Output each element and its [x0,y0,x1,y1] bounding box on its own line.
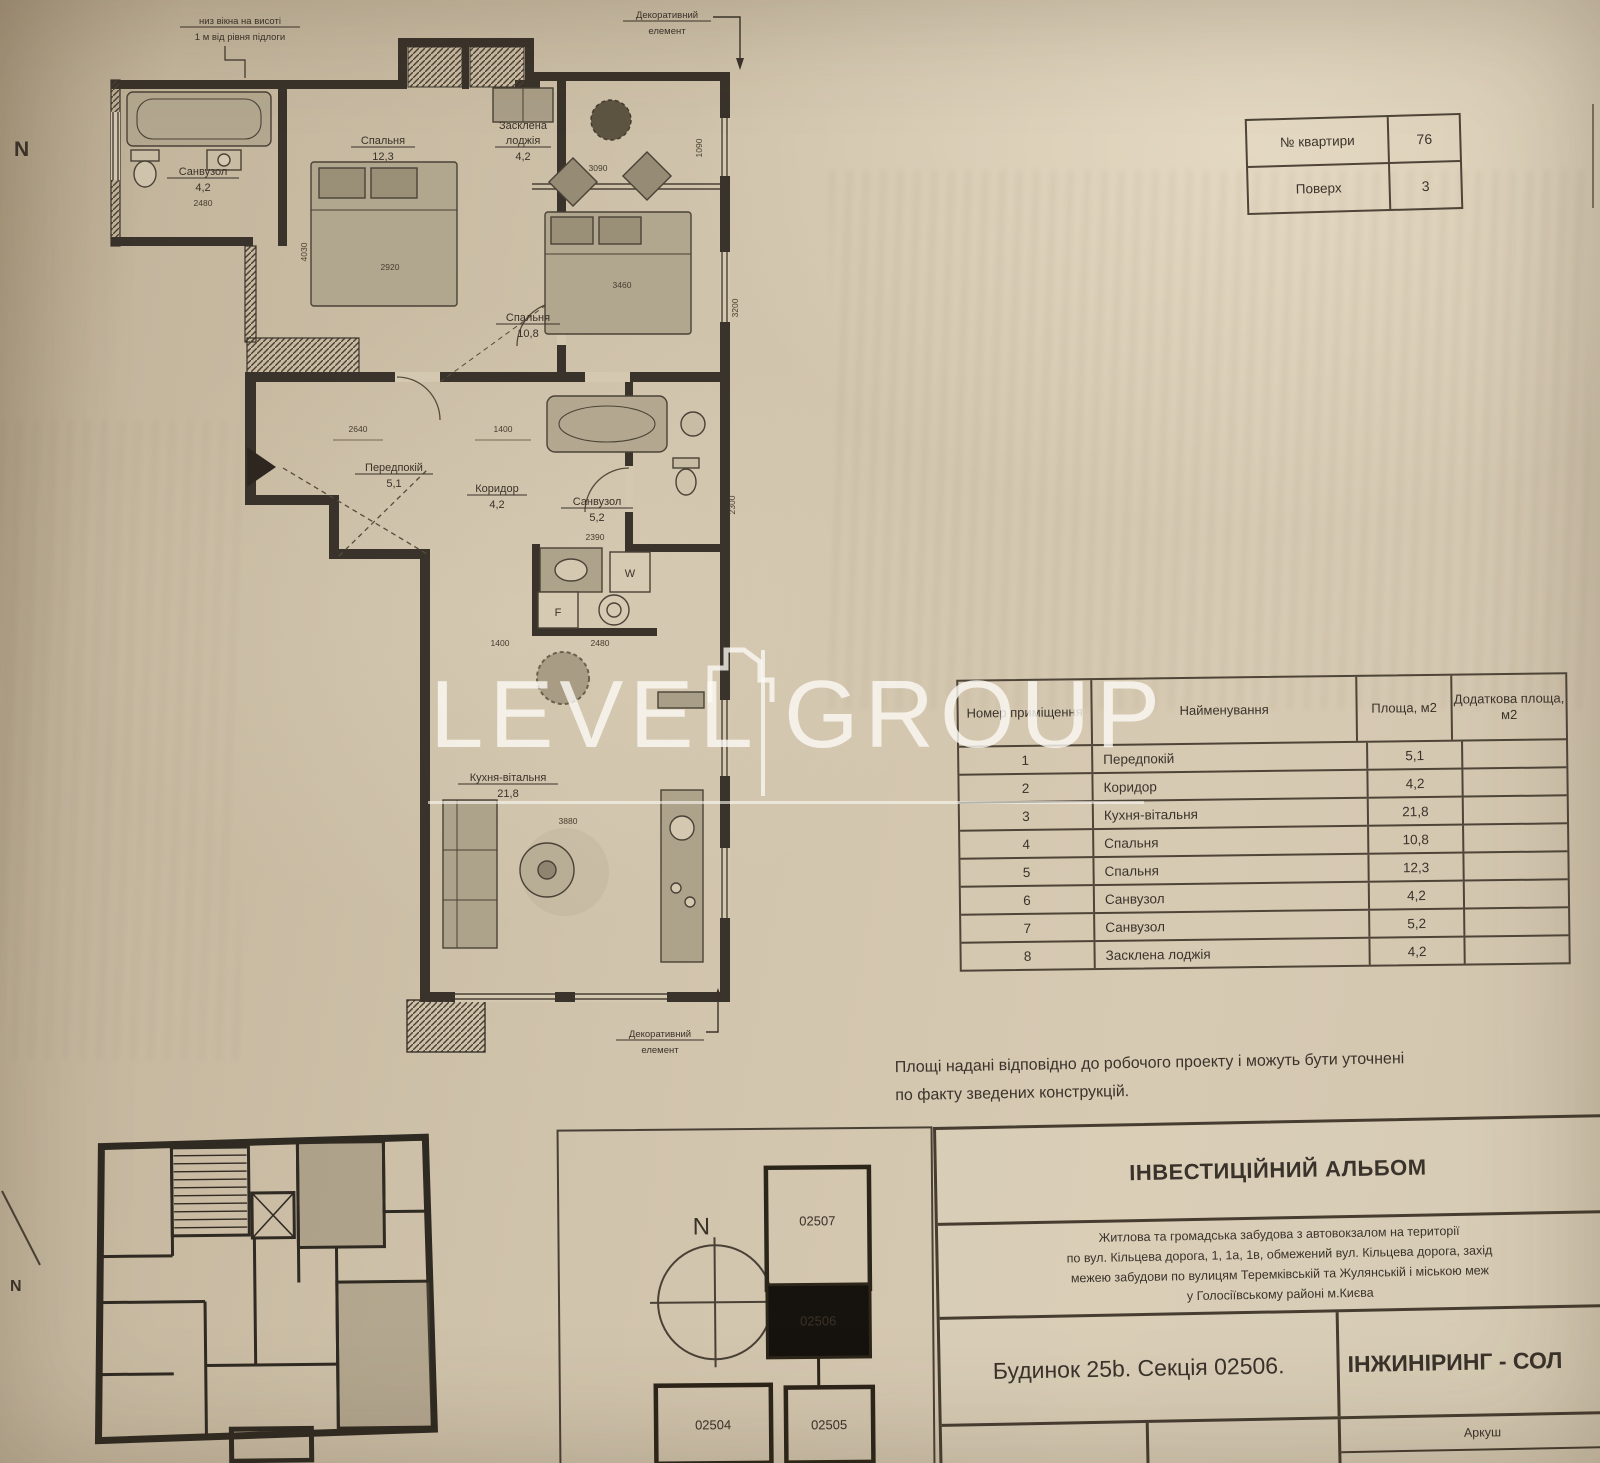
svg-text:елемент: елемент [641,1045,679,1056]
svg-text:3460: 3460 [613,280,632,290]
cell-extra [1463,768,1566,795]
section-02507-label: 02507 [799,1213,835,1228]
svg-text:5,1: 5,1 [386,478,401,490]
apartment-number-value: 76 [1389,115,1460,162]
svg-text:3200: 3200 [730,298,740,317]
svg-text:2390: 2390 [586,532,605,542]
svg-text:елемент: елемент [648,26,686,37]
sheet-label-column: Аркуш [1341,1414,1600,1463]
svg-text:21,8: 21,8 [497,788,518,800]
room-label-bedroom1: Спальня [361,135,405,147]
room-label-loggia: Засклена [499,120,548,132]
svg-text:2640: 2640 [349,424,368,434]
cell-extra [1465,880,1568,907]
areas-disclaimer-note: Площі надані відповідно до робочого прое… [895,1042,1596,1110]
title-block: ІНВЕСТИЦІЙНИЙ АЛЬБОМ Житлова та громадсь… [933,1114,1600,1463]
cell-num: 8 [961,942,1095,970]
section-key-diagram: N 02507 02506 02504 02505 [557,1126,936,1463]
chair-icon [623,152,671,200]
svg-text:2480: 2480 [194,198,213,208]
boiler-icon [681,412,705,436]
project-description: Житлова та громадська забудова з автовок… [938,1213,1600,1320]
floor-value: 3 [1390,162,1461,209]
svg-text:4,2: 4,2 [489,499,504,511]
section-02504-label: 02504 [695,1417,731,1432]
cell-extra [1465,936,1568,963]
cell-num: 6 [961,886,1095,914]
apartment-number-label: № квартири [1247,117,1390,166]
section-02505-label: 02505 [811,1417,847,1432]
svg-text:лоджія: лоджія [506,135,541,147]
svg-text:1400: 1400 [494,424,513,434]
plant-icon [591,100,631,140]
cell-num: 2 [959,774,1093,802]
furniture [127,88,705,962]
key-north-label: N [693,1213,711,1240]
cell-area: 21,8 [1369,798,1464,825]
svg-text:4030: 4030 [299,242,309,261]
document-code-cell: 2L_R3.3.76 [942,1423,1150,1463]
title-block-mid-row: Будинок 25b. Секція 02506. ІНЖИНІРИНГ - … [940,1307,1600,1427]
svg-text:1090: 1090 [694,138,704,157]
room-label-bath2: Санвузол [573,496,622,508]
document-photo: Санвузол 4,2 2480 Спальня 12,3 Засклена … [0,0,1600,1463]
svg-text:12,3: 12,3 [372,151,393,163]
cell-extra [1464,852,1567,879]
room-label-corridor: Коридор [475,483,518,495]
page-edge-table-line [1592,104,1594,208]
svg-text:3880: 3880 [559,816,578,826]
section-02506-label: 02506 [800,1313,836,1328]
cell-num: 5 [960,858,1094,886]
area-table-header: Номер приміщення Найменування Площа, м2 … [958,674,1566,747]
apartment-info-table: № квартири 76 Поверх 3 [1245,113,1464,215]
decorative-element-note-bottom: Декоративний [629,1029,691,1040]
cell-name: Спальня [1094,855,1369,884]
svg-text:5,2: 5,2 [589,512,604,524]
svg-text:2300: 2300 [727,495,737,514]
cell-name: Коридор [1093,771,1368,800]
tv-cabinet-icon [658,692,704,708]
cell-area: 5,2 [1370,910,1465,937]
cell-area: 5,1 [1368,742,1463,769]
cell-name: Передпокій [1093,743,1368,772]
svg-text:3090: 3090 [589,163,608,173]
svg-text:2920: 2920 [381,262,400,272]
cell-name: Кухня-вітальня [1094,799,1369,828]
cell-name: Санвузол [1095,883,1370,912]
cell-area: 12,3 [1369,854,1464,881]
plant-icon [537,652,589,704]
staircase-icon [171,1147,249,1236]
north-arrow-line [0,1185,46,1277]
svg-text:2480: 2480 [591,638,610,648]
header-extra: Додаткова площа, м2 [1452,674,1566,739]
burner-icon [599,595,629,625]
svg-text:1 м від рівня підлоги: 1 м від рівня підлоги [195,32,285,43]
north-label-top: N [14,138,29,162]
window-note: низ вікна на висоті [199,16,281,27]
cell-area: 4,2 [1368,770,1463,797]
room-area-table: Номер приміщення Найменування Площа, м2 … [956,672,1571,971]
cell-name: Спальня [1094,827,1369,856]
svg-text:1400: 1400 [491,638,510,648]
sofa-icon [443,800,497,948]
main-floor-plan: Санвузол 4,2 2480 Спальня 12,3 Засклена … [95,0,765,1060]
washer-label: W [625,568,636,580]
cell-num: 1 [959,746,1093,774]
floor-overview-plan [53,1131,451,1463]
paper-bleed-texture [830,170,1590,710]
cell-extra [1464,796,1567,823]
header-area: Площа, м2 [1357,676,1453,741]
sheet-label-cell: Аркуш [1341,1414,1600,1453]
room-label-bath1: Санвузол [179,166,228,178]
toilet-icon [131,150,159,161]
header-num: Номер приміщення [958,680,1093,746]
cell-name: Санвузол [1095,911,1370,940]
decorative-element-note-top: Декоративний [636,10,698,21]
north-label-bottom: N [10,1278,22,1296]
cell-area: 4,2 [1370,938,1465,965]
svg-text:10,8: 10,8 [517,328,538,340]
room-label-bedroom2: Спальня [506,312,550,324]
cell-extra [1465,908,1568,935]
cell-area: 4,2 [1370,882,1465,909]
room-label-hall: Передпокій [365,462,423,474]
floor-row: Поверх 3 [1248,160,1461,213]
apartment-number-row: № квартири 76 [1247,115,1460,166]
bathtub-icon [547,396,667,452]
floor-label: Поверх [1248,164,1391,213]
cell-extra [1463,740,1566,767]
cell-extra [1464,824,1567,851]
company-cell: ІНЖИНІРИНГ - СОЛ [1339,1307,1600,1416]
album-title: ІНВЕСТИЦІЙНИЙ АЛЬБОМ [936,1117,1600,1226]
header-name: Найменування [1092,677,1358,744]
cell-area: 10,8 [1369,826,1464,853]
building-section-cell: Будинок 25b. Секція 02506. [940,1312,1341,1424]
cell-num: 4 [960,830,1094,858]
cell-num: 7 [961,914,1095,942]
compass-icon [649,1237,780,1368]
cell-num: 3 [960,802,1094,830]
toilet-icon [673,458,699,468]
sheet-number-cell: 21 [1149,1419,1342,1463]
cell-name: Засклена лоджія [1095,939,1370,968]
fridge-label: F [555,607,562,619]
svg-text:4,2: 4,2 [515,151,530,163]
room-label-kitchen: Кухня-вітальня [470,772,547,784]
entrance-arrow-icon [247,447,276,487]
svg-text:4,2: 4,2 [195,182,210,194]
